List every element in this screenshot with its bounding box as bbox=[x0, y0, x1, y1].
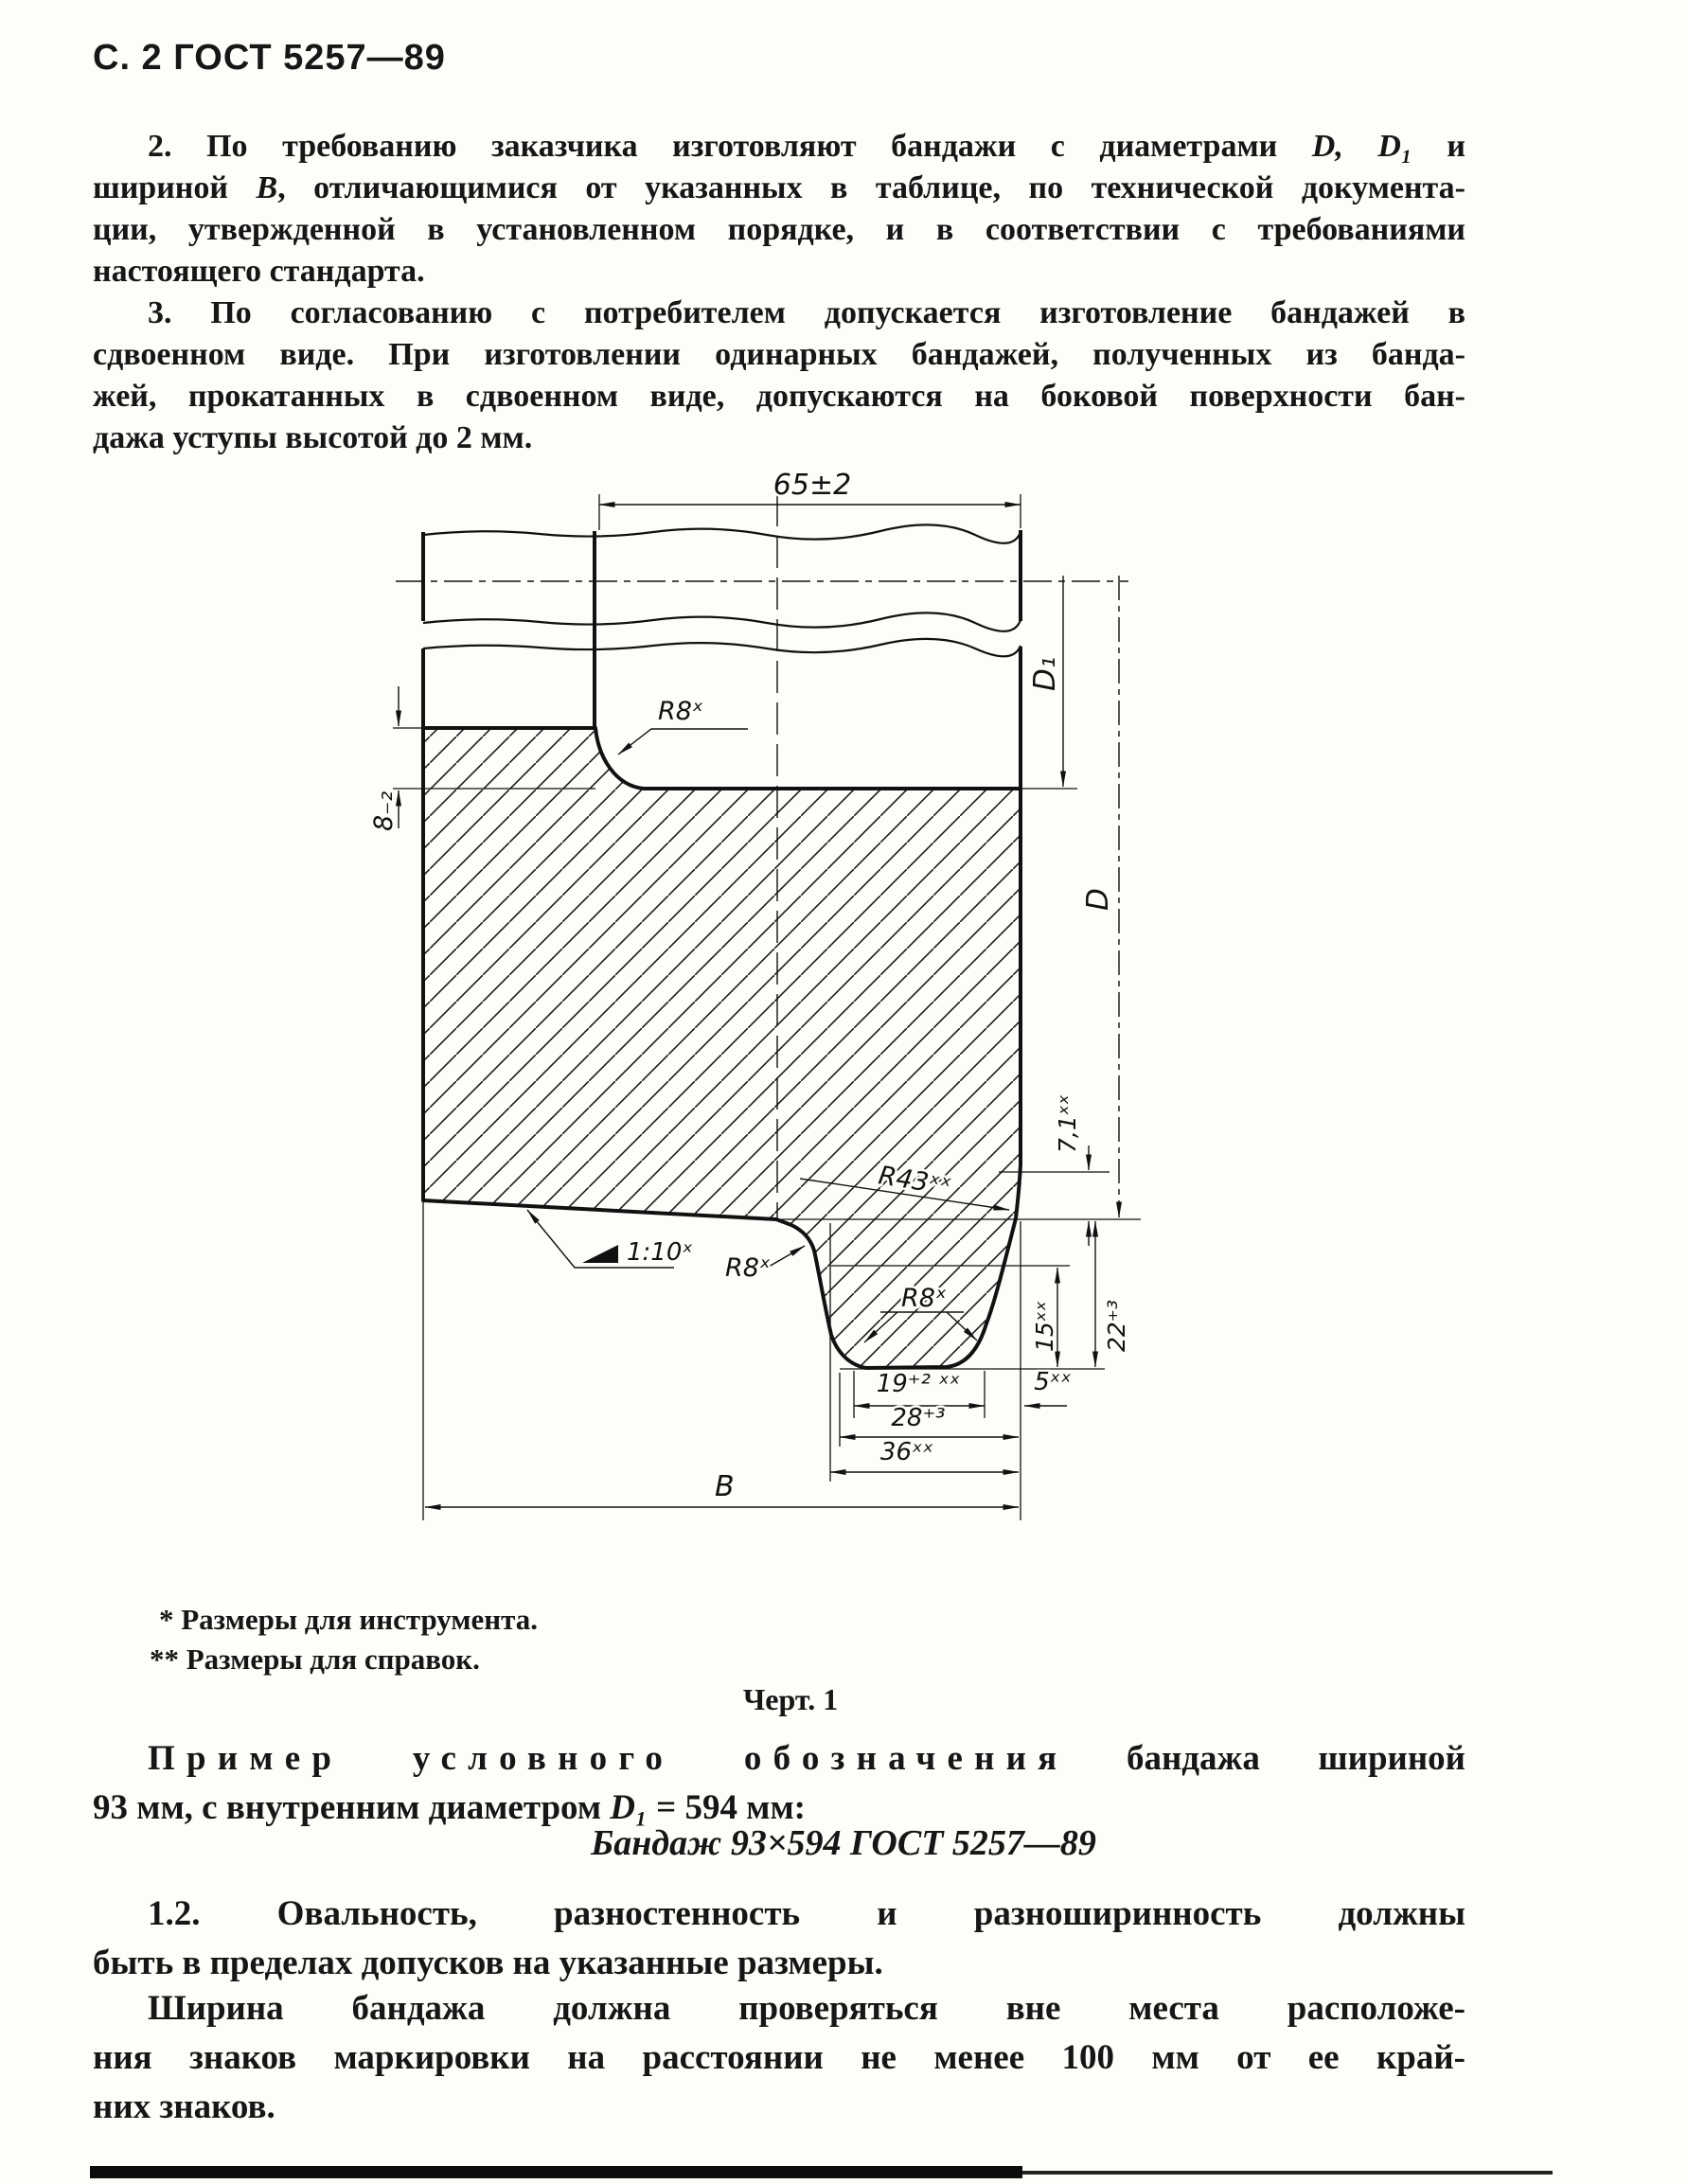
text-run-spaced: Пример условного обозначения bbox=[148, 1739, 1068, 1778]
dim-label-15: 15ˣˣ bbox=[1031, 1301, 1058, 1352]
text-line: сдвоенном виде. При изготовлении одинарн… bbox=[93, 334, 1465, 376]
text-run-italic: D, D₁ bbox=[1312, 129, 1412, 164]
text-line: ния знаков маркировки на расстоянии не м… bbox=[93, 2033, 1465, 2083]
designation-example: Бандаж 93×594 ГОСТ 5257—89 bbox=[0, 1822, 1687, 1864]
text-run-italic: В bbox=[256, 170, 277, 205]
footnote-reference-sizes: ** Размеры для справок. bbox=[150, 1642, 480, 1677]
footnote-tool-sizes: * Размеры для инструмента. bbox=[159, 1603, 538, 1637]
page-header: С. 2 ГОСТ 5257—89 bbox=[93, 38, 446, 79]
text-run: , отличающимися от указанных в таблице, … bbox=[277, 170, 1465, 205]
dim-label-19: 19⁺² ˣˣ bbox=[877, 1370, 961, 1398]
scan-artifact-line bbox=[1022, 2171, 1553, 2175]
dim-label-8: 8₋₂ bbox=[369, 791, 399, 831]
text-run: = 594 мм: bbox=[648, 1788, 806, 1827]
dim-label-5: 5ˣˣ bbox=[1034, 1368, 1072, 1396]
text-line: быть в пределах допусков на указанные ра… bbox=[93, 1939, 1465, 1988]
dim-label-r8-side: R8ˣ bbox=[725, 1253, 771, 1283]
text-run: бандажа шириной bbox=[1068, 1739, 1465, 1778]
figure-caption: Черт. 1 bbox=[0, 1682, 1581, 1717]
dim-label-71: 7,1ˣˣ bbox=[1054, 1094, 1081, 1153]
text-run: 93 мм, с внутренним диаметром bbox=[93, 1788, 610, 1827]
technical-drawing-tire-profile: 65±2 R8ˣ 8₋₂ D₁ D R43ˣˣ 7,1ˣˣ 1:10ˣ R8ˣ … bbox=[350, 445, 1155, 1543]
text-line: ции, утвержденной в установленном порядк… bbox=[93, 209, 1465, 251]
text-run: и bbox=[1412, 129, 1465, 164]
paragraph-1-2: 1.2. Овальность, разностенность и разнош… bbox=[93, 1890, 1465, 1988]
text-line: 1.2. Овальность, разностенность и разнош… bbox=[93, 1890, 1465, 1939]
dim-label-36: 36ˣˣ bbox=[880, 1438, 933, 1466]
leader-r8-step bbox=[618, 729, 748, 755]
paragraph-example: Пример условного обозначения бандажа шир… bbox=[93, 1734, 1465, 1833]
dim-label-r8-groove: R8ˣ bbox=[901, 1284, 947, 1313]
tire-section-hatched-body bbox=[423, 728, 1021, 1368]
dim-label-65: 65±2 bbox=[773, 469, 851, 502]
text-run: 2. По требованию заказчика изготовляют б… bbox=[148, 129, 1312, 164]
text-line: Ширина бандажа должна проверяться вне ме… bbox=[93, 1984, 1465, 2033]
dim-label-taper: 1:10ˣ bbox=[627, 1238, 693, 1267]
dim-label-r8-step: R8ˣ bbox=[658, 697, 703, 726]
text-line: шириной В, отличающимися от указанных в … bbox=[93, 168, 1465, 209]
paragraph-3: 3. По согласованию с потребителем допуск… bbox=[93, 293, 1465, 459]
text-line: 3. По согласованию с потребителем допуск… bbox=[93, 293, 1465, 334]
text-line: них знаков. bbox=[93, 2083, 1465, 2132]
text-line: жей, прокатанных в сдвоенном виде, допус… bbox=[93, 376, 1465, 417]
dim-label-b: В bbox=[715, 1470, 735, 1503]
text-line: Пример условного обозначения бандажа шир… bbox=[93, 1734, 1465, 1784]
text-line: 2. По требованию заказчика изготовляют б… bbox=[93, 126, 1465, 168]
dim-label-28: 28⁺³ bbox=[891, 1404, 945, 1432]
taper-symbol bbox=[582, 1245, 618, 1263]
paragraph-2: 2. По требованию заказчика изготовляют б… bbox=[93, 126, 1465, 293]
dim-label-22: 22⁺³ bbox=[1103, 1300, 1130, 1352]
text-line: настоящего стандарта. bbox=[93, 251, 1465, 293]
scan-artifact-bar bbox=[90, 2166, 1022, 2178]
dim-label-d1: D₁ bbox=[1028, 657, 1062, 691]
document-page: С. 2 ГОСТ 5257—89 2. По требованию заказ… bbox=[0, 0, 1687, 2184]
text-run-italic: D₁ bbox=[610, 1788, 648, 1827]
text-run: шириной bbox=[93, 170, 256, 205]
dim-label-d: D bbox=[1081, 888, 1115, 911]
paragraph-width-check: Ширина бандажа должна проверяться вне ме… bbox=[93, 1984, 1465, 2132]
leader-r8-side bbox=[769, 1246, 805, 1267]
